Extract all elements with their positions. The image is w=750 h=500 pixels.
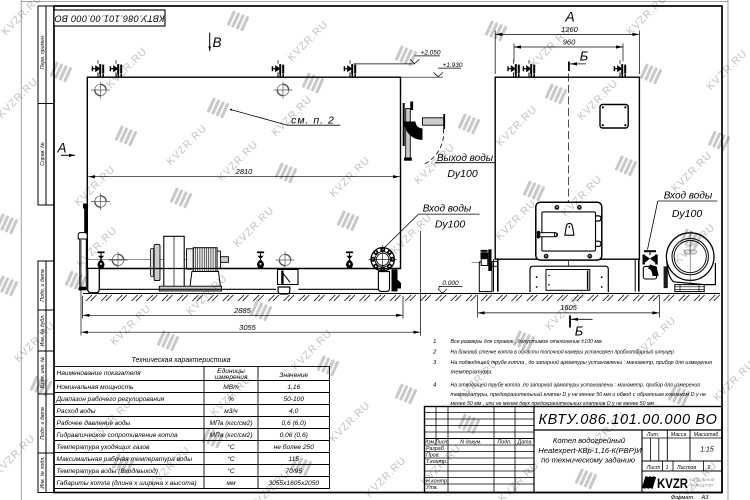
svg-text:по техническому заданию: по техническому заданию (541, 456, 635, 465)
svg-text:Dy100: Dy100 (672, 208, 703, 220)
svg-text:На отводящей трубе котла ,до з: На отводящей трубе котла ,до запорной ар… (451, 382, 701, 389)
svg-text:+1.930: +1.930 (442, 62, 462, 69)
svg-text:2885: 2885 (233, 306, 252, 315)
svg-text:Б: Б (575, 324, 584, 339)
svg-text:N докум.: N докум. (460, 439, 481, 445)
svg-text:1:15: 1:15 (700, 447, 714, 454)
svg-text:Разраб.: Разраб. (426, 446, 445, 452)
svg-text:2: 2 (432, 350, 437, 356)
svg-text:4: 4 (433, 383, 437, 389)
svg-text:КВТУ.086.101.00.000 ВО: КВТУ.086.101.00.000 ВО (54, 13, 164, 23)
svg-text:1: 1 (433, 339, 436, 345)
svg-text:Гидравлическое сопротивление к: Гидравлическое сопротивление котла (57, 431, 178, 439)
svg-text:Листов: Листов (676, 465, 697, 471)
svg-text:Перв. примен.: Перв. примен. (40, 35, 46, 69)
svg-text:Диапазон рабочего регулировани: Диапазон рабочего регулирования (56, 395, 165, 403)
svg-text:МПа (кгс/см2): МПа (кгс/см2) (209, 420, 252, 427)
svg-text:A: A (564, 9, 574, 25)
svg-text:Лист: Лист (646, 465, 661, 471)
svg-text:Наименование показателя: Наименование показателя (57, 370, 142, 377)
svg-text:Вход воды: Вход воды (423, 204, 472, 215)
svg-text:50-100: 50-100 (283, 396, 304, 403)
svg-text:Подп. и дата: Подп. и дата (40, 407, 46, 440)
svg-text:Справ. №: Справ. № (40, 142, 46, 166)
svg-text:3: 3 (433, 360, 437, 366)
svg-text:°С: °С (227, 467, 235, 475)
svg-text:Лит.: Лит. (646, 432, 659, 438)
svg-text:А: А (56, 141, 66, 156)
svg-text:Подп.: Подп. (497, 439, 511, 445)
svg-text:В: В (212, 35, 221, 50)
svg-text:0,6 (6,0): 0,6 (6,0) (281, 420, 306, 427)
svg-text:Пров.: Пров. (426, 452, 440, 458)
svg-text:3055: 3055 (239, 323, 257, 332)
svg-text:Расход воды: Расход воды (57, 407, 96, 415)
svg-text:Техническая характеристика: Техническая характеристика (131, 357, 230, 364)
svg-text:Температура воды (Вход/выход): Температура воды (Вход/выход) (57, 467, 158, 475)
svg-text:Масштаб: Масштаб (694, 432, 720, 438)
svg-text:Температура уходящих газов: Температура уходящих газов (57, 443, 150, 451)
svg-text:Габариты котла (длина х ширина: Габариты котла (длина х ширина х высота) (57, 479, 197, 487)
svg-text:Изм.: Изм. (424, 439, 435, 445)
svg-text:Dy100: Dy100 (435, 219, 466, 231)
svg-text:Лист: Лист (434, 439, 449, 445)
svg-text:Масса: Масса (671, 432, 687, 438)
svg-text:А3: А3 (701, 495, 710, 500)
svg-text:+2.050: +2.050 (420, 50, 440, 57)
svg-text:Подп. и дата: Подп. и дата (40, 269, 46, 302)
svg-text:Значение: Значение (279, 372, 308, 379)
svg-text:КВТУ.086.101.00.000 ВО: КВТУ.086.101.00.000 ВО (538, 412, 717, 428)
svg-text:Дата: Дата (517, 439, 532, 445)
svg-text:Вход воды: Вход воды (664, 191, 713, 202)
svg-text:4,0: 4,0 (289, 408, 298, 415)
svg-text:1: 1 (666, 465, 669, 471)
svg-text:мм: мм (226, 480, 236, 487)
svg-text:Инв. № подл.: Инв. № подл. (40, 456, 46, 488)
svg-text:0,06 (0,6): 0,06 (0,6) (280, 432, 308, 439)
svg-text:Б: Б (580, 49, 589, 64)
svg-text:°С: °С (227, 455, 235, 463)
svg-text:не более 250: не более 250 (274, 443, 315, 451)
svg-text:Номинальная мощность: Номинальная мощность (57, 384, 135, 391)
svg-text:0.000: 0.000 (442, 280, 459, 287)
svg-text:температуры, предохранительный: температуры, предохранительный клапан D … (451, 391, 707, 398)
svg-text:1,16: 1,16 (287, 384, 300, 391)
svg-text:Dy100: Dy100 (447, 168, 478, 180)
svg-text:°С: °С (227, 443, 235, 451)
